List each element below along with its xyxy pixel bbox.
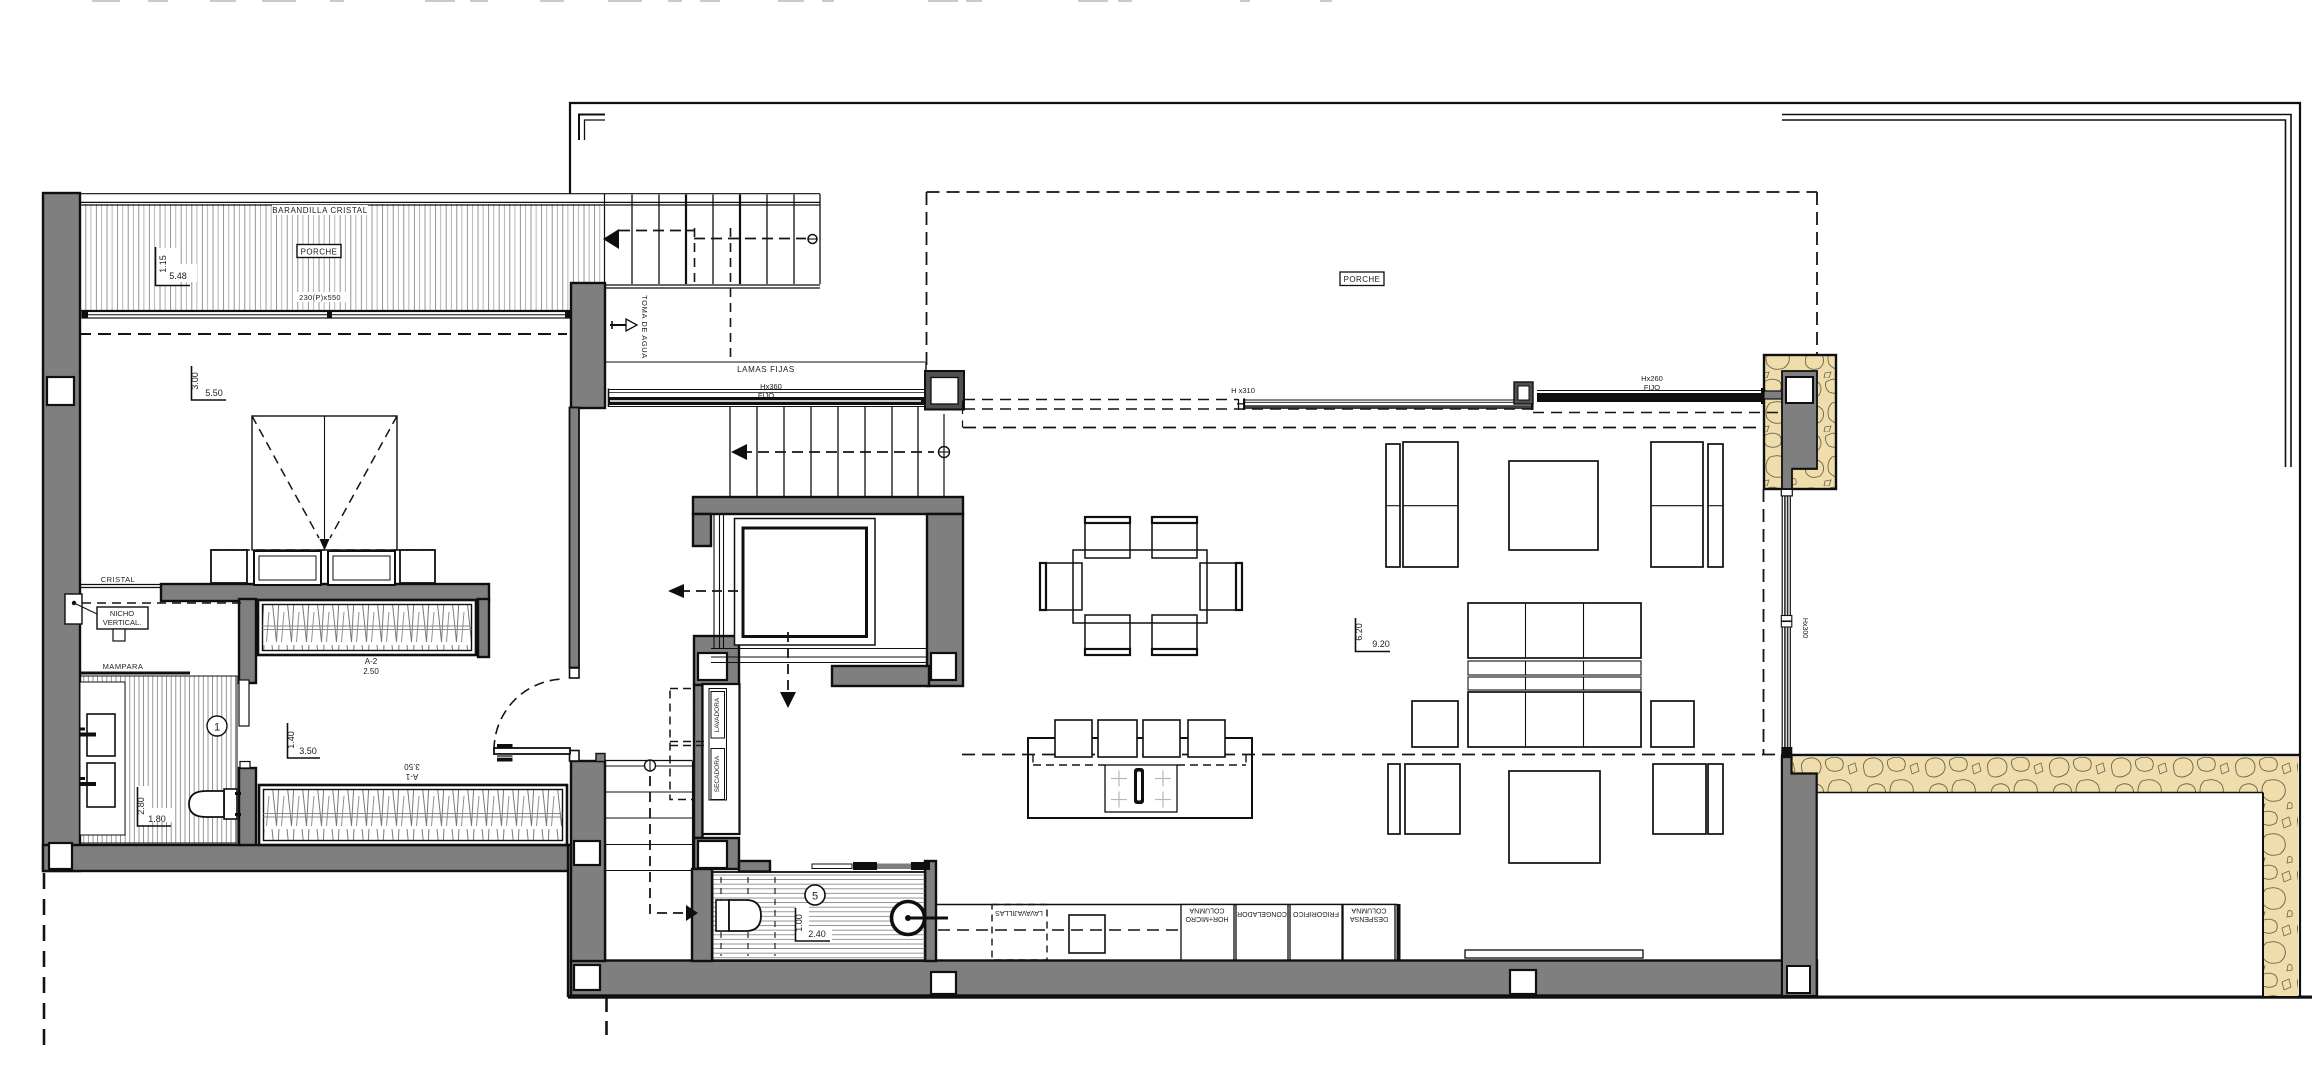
svg-text:2.40: 2.40 xyxy=(808,929,826,939)
svg-text:1.15: 1.15 xyxy=(158,255,168,273)
svg-text:1.80: 1.80 xyxy=(148,814,166,824)
svg-text:CONGELADOR: CONGELADOR xyxy=(1237,910,1287,917)
svg-text:COLUMNA: COLUMNA xyxy=(1189,907,1224,914)
svg-text:COLUMNA: COLUMNA xyxy=(1351,907,1386,914)
svg-text:CRISTAL: CRISTAL xyxy=(101,575,136,584)
svg-text:HOR+MICRO: HOR+MICRO xyxy=(1185,915,1229,922)
svg-text:LAVAVAJILLAS: LAVAVAJILLAS xyxy=(995,909,1043,916)
svg-text:BARANDILLA CRISTAL: BARANDILLA CRISTAL xyxy=(272,206,368,215)
svg-text:A-1: A-1 xyxy=(405,772,418,781)
svg-text:1: 1 xyxy=(214,722,220,734)
svg-text:NICHO: NICHO xyxy=(110,609,134,618)
svg-text:SECADORA: SECADORA xyxy=(714,755,721,792)
svg-text:3.50: 3.50 xyxy=(299,746,317,756)
svg-text:DESPENSA: DESPENSA xyxy=(1350,915,1388,922)
svg-text:2.50: 2.50 xyxy=(363,667,379,676)
svg-text:TOMA DE AGUA: TOMA DE AGUA xyxy=(640,295,649,359)
svg-text:LAMAS FIJAS: LAMAS FIJAS xyxy=(737,365,795,374)
svg-text:H x310: H x310 xyxy=(1231,386,1255,395)
svg-text:PORCHE: PORCHE xyxy=(301,248,338,257)
svg-text:VERTICAL.: VERTICAL. xyxy=(103,618,142,627)
svg-text:5.50: 5.50 xyxy=(205,388,223,398)
svg-text:LAVADORA: LAVADORA xyxy=(714,697,721,732)
svg-text:PORCHE: PORCHE xyxy=(1344,275,1381,284)
svg-text:230(P)x550: 230(P)x550 xyxy=(299,293,341,302)
svg-text:9.20: 9.20 xyxy=(1372,639,1390,649)
svg-text:MAMPARA: MAMPARA xyxy=(103,662,144,671)
svg-text:Hx300: Hx300 xyxy=(1801,618,1808,638)
svg-text:A-2: A-2 xyxy=(365,657,378,666)
svg-text:3.50: 3.50 xyxy=(404,762,420,771)
svg-text:5.48: 5.48 xyxy=(169,271,187,281)
svg-text:Hx260: Hx260 xyxy=(1641,374,1663,383)
svg-text:FRIGORIFICO: FRIGORIFICO xyxy=(1293,910,1339,917)
svg-text:5: 5 xyxy=(812,891,818,903)
